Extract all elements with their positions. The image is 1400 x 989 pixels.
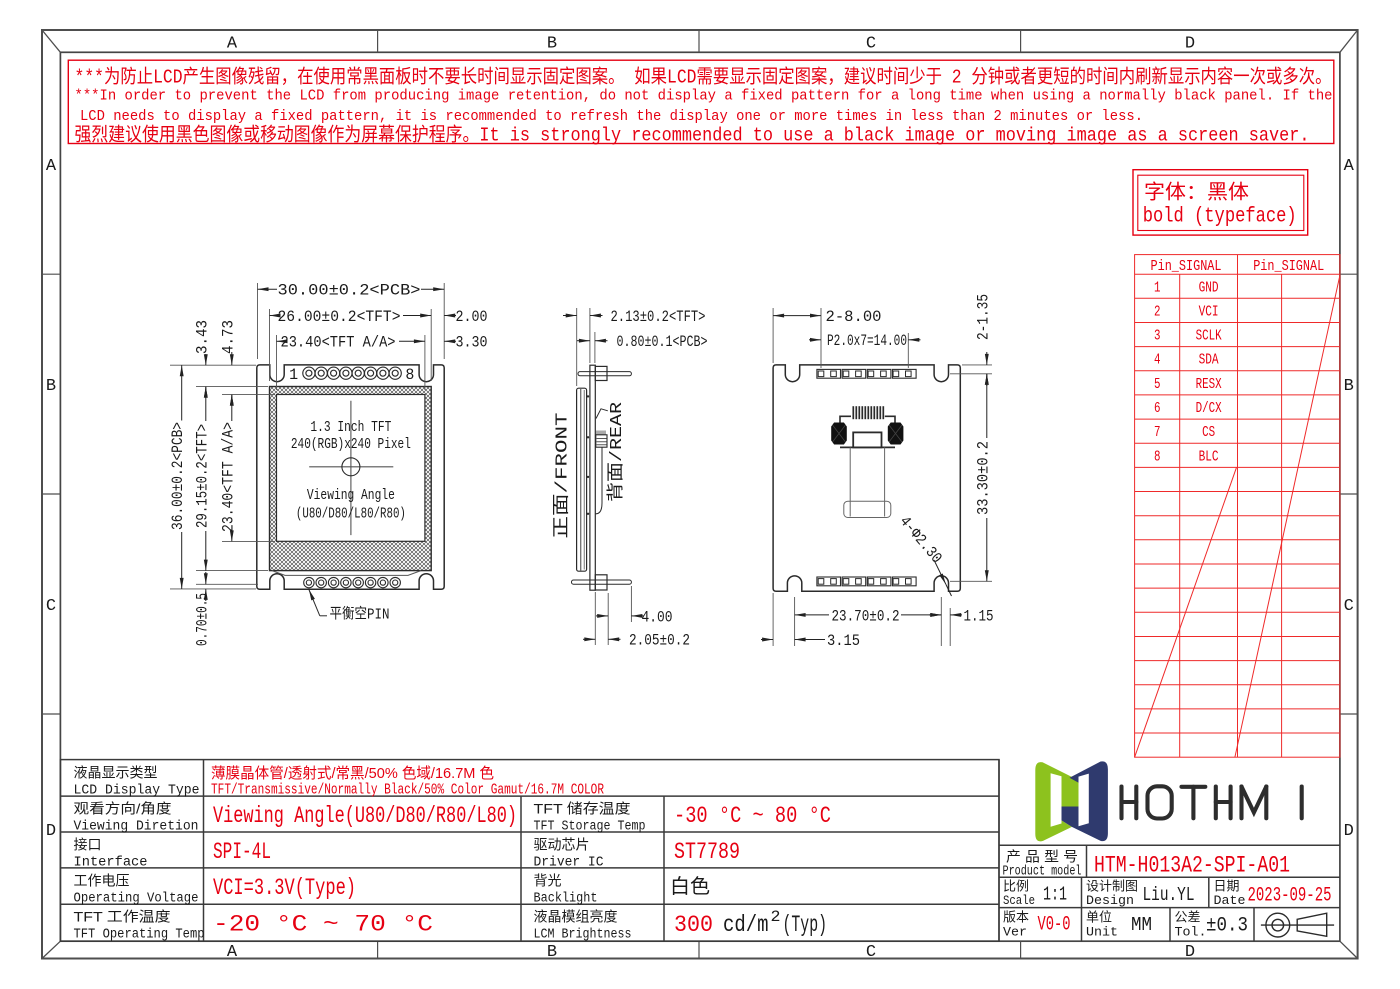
svg-text:VCI=3.3V(Type): VCI=3.3V(Type) xyxy=(213,875,356,901)
svg-text:2: 2 xyxy=(771,908,781,926)
svg-text:***In order to prevent the LCD: ***In order to prevent the LCD from prod… xyxy=(75,89,1333,105)
svg-text:36.00±0.2<PCB>: 36.00±0.2<PCB> xyxy=(169,422,187,530)
svg-text:Interface: Interface xyxy=(74,856,148,871)
svg-text:Date: Date xyxy=(1214,893,1246,908)
svg-text:1: 1 xyxy=(289,366,298,384)
svg-text:MM: MM xyxy=(1131,914,1152,936)
svg-text:cd/m: cd/m xyxy=(723,912,769,938)
svg-text:D/CX: D/CX xyxy=(1196,400,1222,417)
svg-text:SCLK: SCLK xyxy=(1196,328,1222,345)
svg-text:Ver: Ver xyxy=(1003,924,1027,939)
svg-text:设计制图: 设计制图 xyxy=(1086,879,1138,894)
svg-text:A: A xyxy=(227,943,238,962)
svg-text:Viewing Diretion: Viewing Diretion xyxy=(74,820,199,835)
svg-text:TFT Storage Temp: TFT Storage Temp xyxy=(534,820,646,835)
svg-text:CS: CS xyxy=(1202,424,1215,441)
svg-text:0.70±0.5: 0.70±0.5 xyxy=(193,593,211,646)
svg-text:B: B xyxy=(547,943,557,962)
svg-text:Liu.YL: Liu.YL xyxy=(1143,884,1195,906)
svg-text:Pin_SIGNAL: Pin_SIGNAL xyxy=(1151,258,1222,275)
svg-text:单位: 单位 xyxy=(1086,909,1112,924)
svg-text:23.40<TFT A/A>: 23.40<TFT A/A> xyxy=(219,422,237,532)
svg-text:VCI: VCI xyxy=(1199,303,1219,320)
svg-text:平衡空PIN: 平衡空PIN xyxy=(330,606,390,624)
svg-text:BLC: BLC xyxy=(1199,448,1219,465)
svg-text:产 品 型 号: 产 品 型 号 xyxy=(1006,849,1078,865)
svg-text:白色: 白色 xyxy=(670,875,710,898)
svg-text:LCD needs to display a fixed p: LCD needs to display a fixed pattern, it… xyxy=(80,109,1143,125)
svg-text:***为防止LCD产生图像残留，在使用常黑面板时不要长时间显: ***为防止LCD产生图像残留，在使用常黑面板时不要长时间显示固定图案。 如果L… xyxy=(75,65,1332,88)
svg-text:强烈建议使用黑色图像或移动图像作为屏幕保护程序。It is: 强烈建议使用黑色图像或移动图像作为屏幕保护程序。It is strongly r… xyxy=(75,124,1310,147)
svg-text:公差: 公差 xyxy=(1175,909,1201,924)
svg-text:驱动芯片: 驱动芯片 xyxy=(534,837,590,853)
svg-text:A: A xyxy=(1344,157,1355,176)
svg-text:2.05±0.2: 2.05±0.2 xyxy=(629,632,690,650)
svg-text:3: 3 xyxy=(1154,328,1161,345)
svg-text:30.00±0.2<PCB>: 30.00±0.2<PCB> xyxy=(278,282,421,300)
svg-text:1: 1 xyxy=(1154,279,1161,296)
svg-text:±0.3: ±0.3 xyxy=(1206,914,1248,937)
svg-text:26.00±0.2<TFT>: 26.00±0.2<TFT> xyxy=(278,308,401,326)
svg-text:2023-09-25: 2023-09-25 xyxy=(1248,885,1332,908)
svg-text:D: D xyxy=(46,822,56,841)
svg-text:观看方向/角度: 观看方向/角度 xyxy=(74,801,172,817)
svg-text:C: C xyxy=(46,597,56,616)
svg-text:4.73: 4.73 xyxy=(219,320,237,354)
svg-text:比例: 比例 xyxy=(1003,879,1029,894)
svg-text:300: 300 xyxy=(674,912,713,938)
svg-text:TFT 工作温度: TFT 工作温度 xyxy=(74,909,171,925)
svg-text:Operating Voltage: Operating Voltage xyxy=(74,892,199,907)
svg-text:2: 2 xyxy=(1154,303,1161,320)
svg-text:Tol.: Tol. xyxy=(1175,924,1207,939)
svg-text:-30 °C ~ 80 °C: -30 °C ~ 80 °C xyxy=(674,803,831,829)
svg-text:(Typ): (Typ) xyxy=(783,912,828,938)
svg-text:33.30±0.2: 33.30±0.2 xyxy=(974,441,992,515)
svg-text:(U80/D80/L80/R80): (U80/D80/L80/R80) xyxy=(296,506,406,523)
svg-text:TFT 储存温度: TFT 储存温度 xyxy=(534,801,631,817)
svg-text:2.00: 2.00 xyxy=(456,308,488,326)
svg-text:LCM Brightness: LCM Brightness xyxy=(534,928,632,943)
svg-text:Design: Design xyxy=(1086,893,1134,908)
svg-text:Viewing Angle(U80/D80/R80/L80): Viewing Angle(U80/D80/R80/L80) xyxy=(213,803,517,829)
svg-text:6: 6 xyxy=(1154,400,1161,417)
svg-text:SDA: SDA xyxy=(1199,352,1219,369)
svg-text:V0-0: V0-0 xyxy=(1038,913,1071,936)
svg-text:23.40<TFT A/A>: 23.40<TFT A/A> xyxy=(281,334,396,352)
svg-text:C: C xyxy=(866,35,876,54)
svg-text:29.15±0.2<TFT>: 29.15±0.2<TFT> xyxy=(193,424,211,528)
svg-text:1.15: 1.15 xyxy=(964,607,994,625)
svg-text:4: 4 xyxy=(1154,352,1161,369)
svg-text:3.15: 3.15 xyxy=(827,632,860,650)
svg-text:1.3 Inch TFT: 1.3 Inch TFT xyxy=(310,419,391,436)
svg-text:240(RGB)x240 Pixel: 240(RGB)x240 Pixel xyxy=(291,436,411,453)
svg-text:接口: 接口 xyxy=(74,837,102,853)
svg-text:8: 8 xyxy=(1154,448,1161,465)
svg-text:A: A xyxy=(227,35,238,54)
svg-text:3.43: 3.43 xyxy=(193,320,211,354)
svg-text:液晶模组亮度: 液晶模组亮度 xyxy=(534,909,618,925)
svg-text:C: C xyxy=(866,943,876,962)
svg-text:版本: 版本 xyxy=(1003,909,1029,924)
svg-text:4.00: 4.00 xyxy=(642,608,673,626)
svg-text:Product model: Product model xyxy=(1003,865,1082,880)
svg-text:P2.0x7=14.00: P2.0x7=14.00 xyxy=(827,332,907,350)
svg-text:RESX: RESX xyxy=(1196,376,1222,393)
svg-text:7: 7 xyxy=(1154,424,1161,441)
svg-text:D: D xyxy=(1344,822,1354,841)
svg-text:2.13±0.2<TFT>: 2.13±0.2<TFT> xyxy=(611,308,706,326)
svg-text:D: D xyxy=(1185,943,1195,962)
svg-text:5: 5 xyxy=(1154,376,1161,393)
svg-text:ST7789: ST7789 xyxy=(674,839,740,865)
svg-text:23.70±0.2: 23.70±0.2 xyxy=(832,607,900,625)
svg-text:Viewing Angle: Viewing Angle xyxy=(307,487,395,504)
svg-text:正面/FRONT: 正面/FRONT xyxy=(553,413,573,539)
svg-text:GND: GND xyxy=(1199,279,1219,296)
svg-text:HTM-H013A2-SPI-A01: HTM-H013A2-SPI-A01 xyxy=(1094,852,1290,878)
svg-text:B: B xyxy=(46,377,56,396)
svg-text:TFT/Transmissive/Normally Blac: TFT/Transmissive/Normally Black/50% Colo… xyxy=(211,782,604,799)
svg-text:Backlight: Backlight xyxy=(534,892,598,907)
svg-text:-20 °C ~ 70 °C: -20 °C ~ 70 °C xyxy=(213,912,433,938)
svg-text:Scale: Scale xyxy=(1003,893,1035,908)
svg-text:薄膜晶体管/透射式/常黑/50% 色域/16.7M 色: 薄膜晶体管/透射式/常黑/50% 色域/16.7M 色 xyxy=(211,765,494,782)
svg-text:LCD Display Type: LCD Display Type xyxy=(74,784,200,799)
svg-text:bold (typeface): bold (typeface) xyxy=(1143,206,1297,229)
svg-text:Unit: Unit xyxy=(1086,924,1118,939)
svg-text:2-8.00: 2-8.00 xyxy=(826,308,882,326)
svg-text:D: D xyxy=(1185,35,1195,54)
svg-text:背光: 背光 xyxy=(534,873,562,889)
svg-text:TFT Operating Temp: TFT Operating Temp xyxy=(74,928,205,943)
svg-text:SPI-4L: SPI-4L xyxy=(213,839,271,865)
svg-text:0.80±0.1<PCB>: 0.80±0.1<PCB> xyxy=(617,333,708,351)
svg-text:3.30: 3.30 xyxy=(456,334,488,352)
svg-text:8: 8 xyxy=(405,366,414,384)
svg-text:背面/REAR: 背面/REAR xyxy=(606,402,627,502)
svg-text:A: A xyxy=(46,157,57,176)
svg-text:B: B xyxy=(547,35,557,54)
svg-text:日期: 日期 xyxy=(1214,879,1240,894)
svg-text:字体：黑体: 字体：黑体 xyxy=(1144,181,1249,204)
svg-text:2-1.35: 2-1.35 xyxy=(974,294,992,340)
svg-text:Pin_SIGNAL: Pin_SIGNAL xyxy=(1253,258,1324,275)
svg-text:C: C xyxy=(1344,597,1354,616)
svg-text:1:1: 1:1 xyxy=(1043,884,1067,906)
svg-text:Driver IC: Driver IC xyxy=(534,856,604,871)
svg-text:液晶显示类型: 液晶显示类型 xyxy=(74,765,158,781)
svg-text:B: B xyxy=(1344,377,1354,396)
svg-text:工作电压: 工作电压 xyxy=(74,873,130,889)
